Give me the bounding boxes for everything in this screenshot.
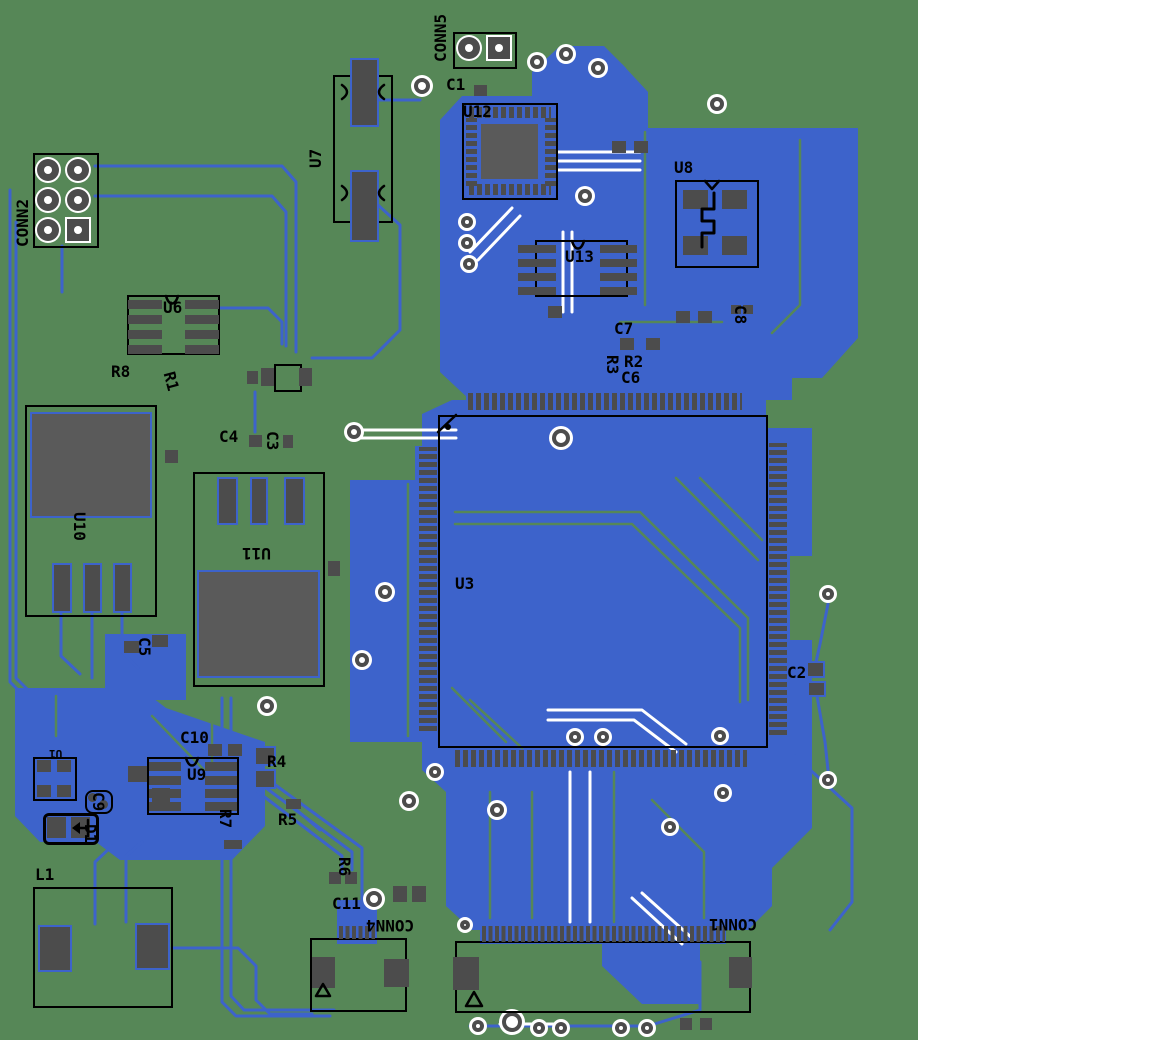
refdes-r6: R6 [336,857,352,876]
refdes-u10: U10 [71,512,87,541]
refdes-u7: U7 [308,149,324,168]
refdes-u11: U11 [242,545,271,561]
refdes-c5: C5 [136,637,152,656]
refdes-conn4: CONN4 [366,917,414,933]
pcb-board[interactable]: CONN5 CONN2 U7 U12 C1 U8 U13 U6 R8 R1 C7… [0,0,918,1040]
refdes-u12: U12 [463,104,492,120]
silkscreen-layer [0,0,918,1040]
refdes-c2: C2 [787,665,806,681]
refdes-u1: U1 [49,748,62,759]
refdes-d1: D1 [82,824,98,843]
refdes-r3: R3 [604,355,620,374]
pcb-layout-screenshot: CONN5 CONN2 U7 U12 C1 U8 U13 U6 R8 R1 C7… [0,0,1174,1062]
refdes-r4: R4 [267,754,286,770]
refdes-u13: U13 [565,249,594,265]
refdes-c9: C9 [90,792,106,811]
refdes-u6: U6 [163,300,182,316]
refdes-c10: C10 [180,730,209,746]
refdes-u3: U3 [455,576,474,592]
refdes-r8: R8 [111,364,130,380]
refdes-c6: C6 [621,370,640,386]
refdes-c8: C8 [732,305,748,324]
refdes-u9: U9 [187,767,206,783]
refdes-r1: R1 [161,370,181,393]
refdes-r7: R7 [217,809,233,828]
refdes-l1: L1 [35,867,54,883]
refdes-conn1: CONN1 [709,916,757,932]
refdes-c11: C11 [332,896,361,912]
refdes-conn5: CONN5 [433,14,449,62]
refdes-c4: C4 [219,429,238,445]
refdes-c3: C3 [264,431,280,450]
refdes-conn2: CONN2 [15,199,31,247]
refdes-r5: R5 [278,812,297,828]
refdes-c7: C7 [614,321,633,337]
refdes-u8: U8 [674,160,693,176]
refdes-c1: C1 [446,77,465,93]
